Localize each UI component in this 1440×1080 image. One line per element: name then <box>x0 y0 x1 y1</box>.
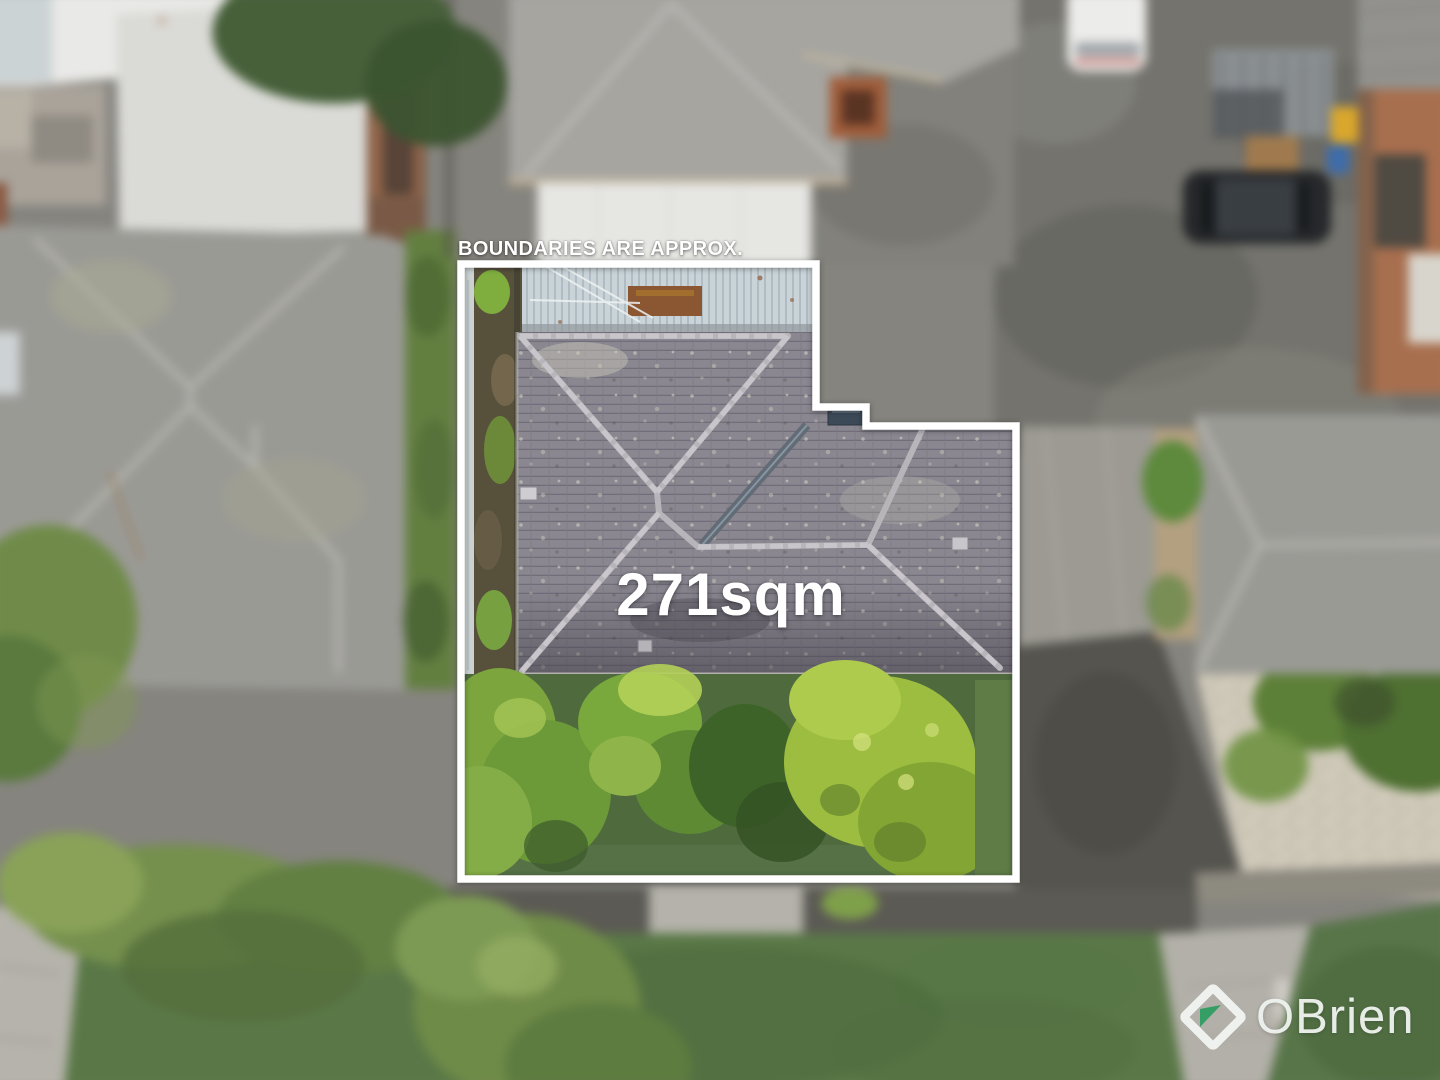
diamond-icon <box>1180 984 1246 1050</box>
property-boundary-overlay <box>0 0 1440 1080</box>
obrien-logo: OBrien <box>1180 984 1415 1050</box>
green-triangle-icon <box>1200 1005 1221 1027</box>
boundaries-disclaimer-label: BOUNDARIES ARE APPROX. <box>458 238 743 261</box>
aerial-property-photo: BOUNDARIES ARE APPROX. 271sqm OBrien <box>0 0 1440 1080</box>
land-area-label: 271sqm <box>531 560 931 629</box>
brand-name: OBrien <box>1256 989 1415 1045</box>
